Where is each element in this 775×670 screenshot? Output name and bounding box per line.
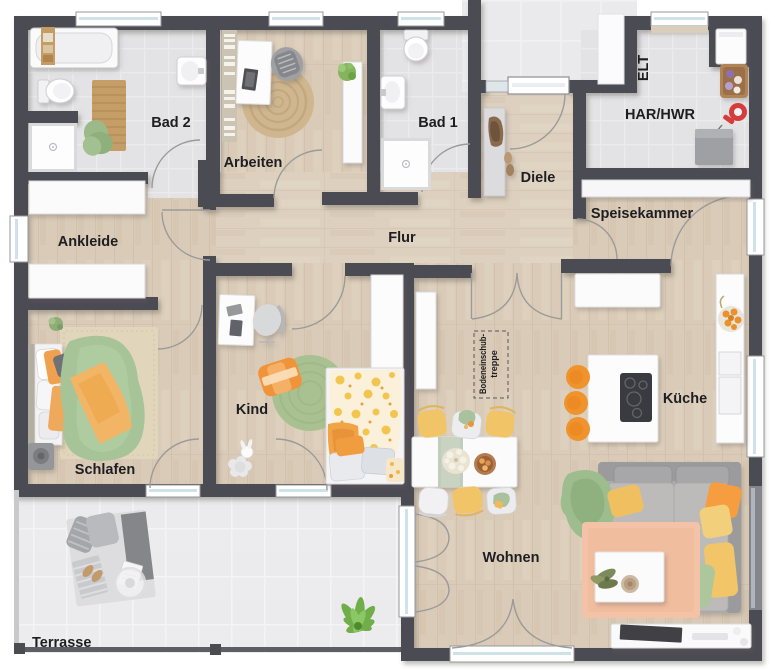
svg-text:Arbeiten: Arbeiten bbox=[224, 155, 283, 171]
svg-text:Terrasse: Terrasse bbox=[32, 635, 91, 651]
svg-text:Schlafen: Schlafen bbox=[75, 462, 135, 478]
svg-text:ELT: ELT bbox=[636, 55, 652, 81]
svg-text:Wohnen: Wohnen bbox=[483, 550, 540, 566]
svg-text:HAR/HWR: HAR/HWR bbox=[625, 107, 696, 123]
svg-text:Küche: Küche bbox=[663, 391, 707, 407]
svg-text:Bad 2: Bad 2 bbox=[151, 115, 191, 131]
svg-text:treppe: treppe bbox=[489, 350, 499, 378]
svg-text:Bad 1: Bad 1 bbox=[418, 115, 458, 131]
svg-text:Diele: Diele bbox=[521, 170, 556, 186]
svg-text:Kind: Kind bbox=[236, 402, 268, 418]
svg-text:Bodeneinschub-: Bodeneinschub- bbox=[478, 334, 488, 394]
svg-text:Ankleide: Ankleide bbox=[58, 234, 118, 250]
svg-text:Speisekammer: Speisekammer bbox=[591, 206, 694, 222]
svg-text:Flur: Flur bbox=[388, 230, 416, 246]
